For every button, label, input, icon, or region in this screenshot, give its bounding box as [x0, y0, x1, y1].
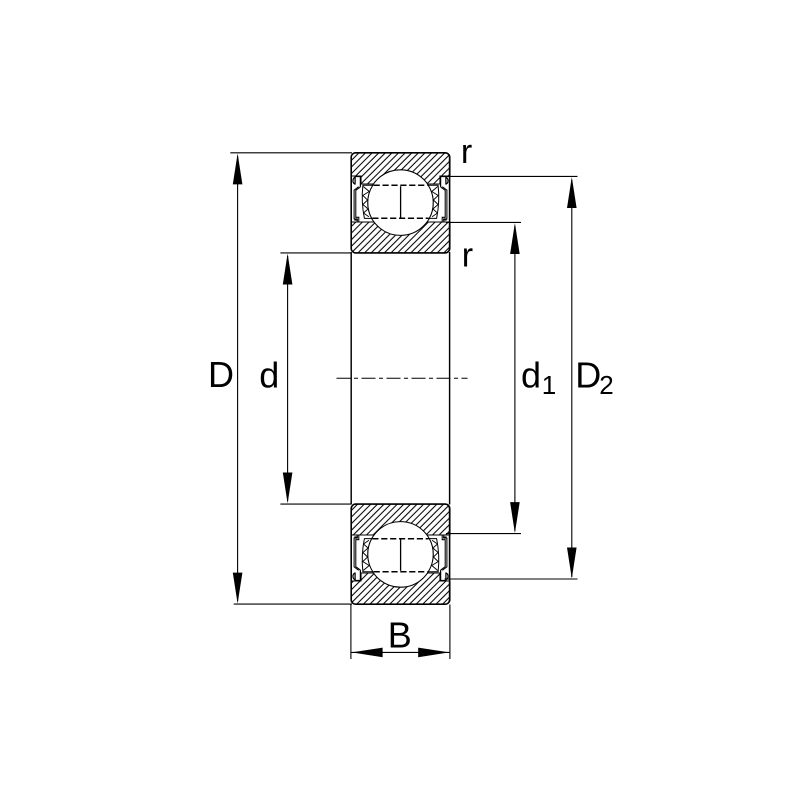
- svg-text:2: 2: [599, 370, 613, 400]
- svg-text:d: d: [259, 355, 279, 396]
- svg-text:r: r: [461, 133, 472, 171]
- svg-text:D: D: [575, 355, 601, 396]
- svg-text:1: 1: [542, 370, 556, 400]
- svg-text:D: D: [208, 354, 234, 395]
- svg-text:B: B: [388, 614, 412, 655]
- svg-text:r: r: [462, 236, 473, 274]
- svg-text:d: d: [521, 355, 541, 396]
